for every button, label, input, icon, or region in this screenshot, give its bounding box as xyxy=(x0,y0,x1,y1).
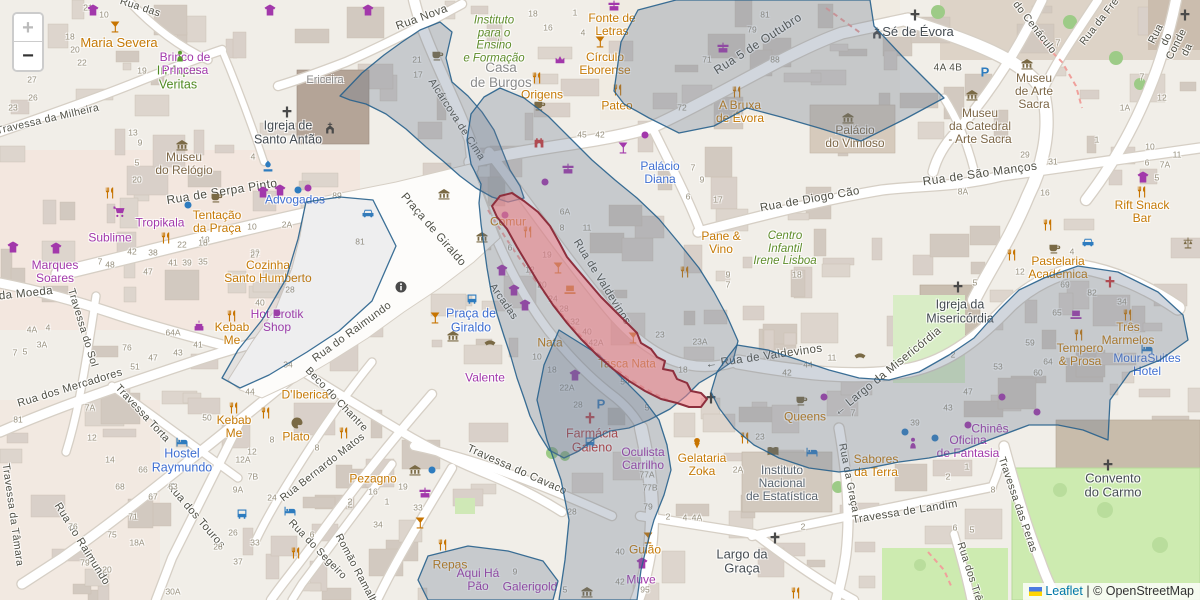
leaflet-link[interactable]: Leaflet xyxy=(1045,584,1083,598)
attribution-separator: | xyxy=(1086,584,1089,598)
zoom-control: + − xyxy=(12,12,44,72)
zoom-in-button[interactable]: + xyxy=(14,14,42,42)
attribution-bar: Leaflet | © OpenStreetMap xyxy=(1023,583,1200,600)
ukraine-flag-icon xyxy=(1029,587,1042,596)
openstreetmap-link[interactable]: © OpenStreetMap xyxy=(1093,584,1194,598)
map-canvas[interactable]: Rua NovaRua dasTravessa da MilheiraRua d… xyxy=(0,0,1200,600)
zoom-out-button[interactable]: − xyxy=(14,42,42,70)
